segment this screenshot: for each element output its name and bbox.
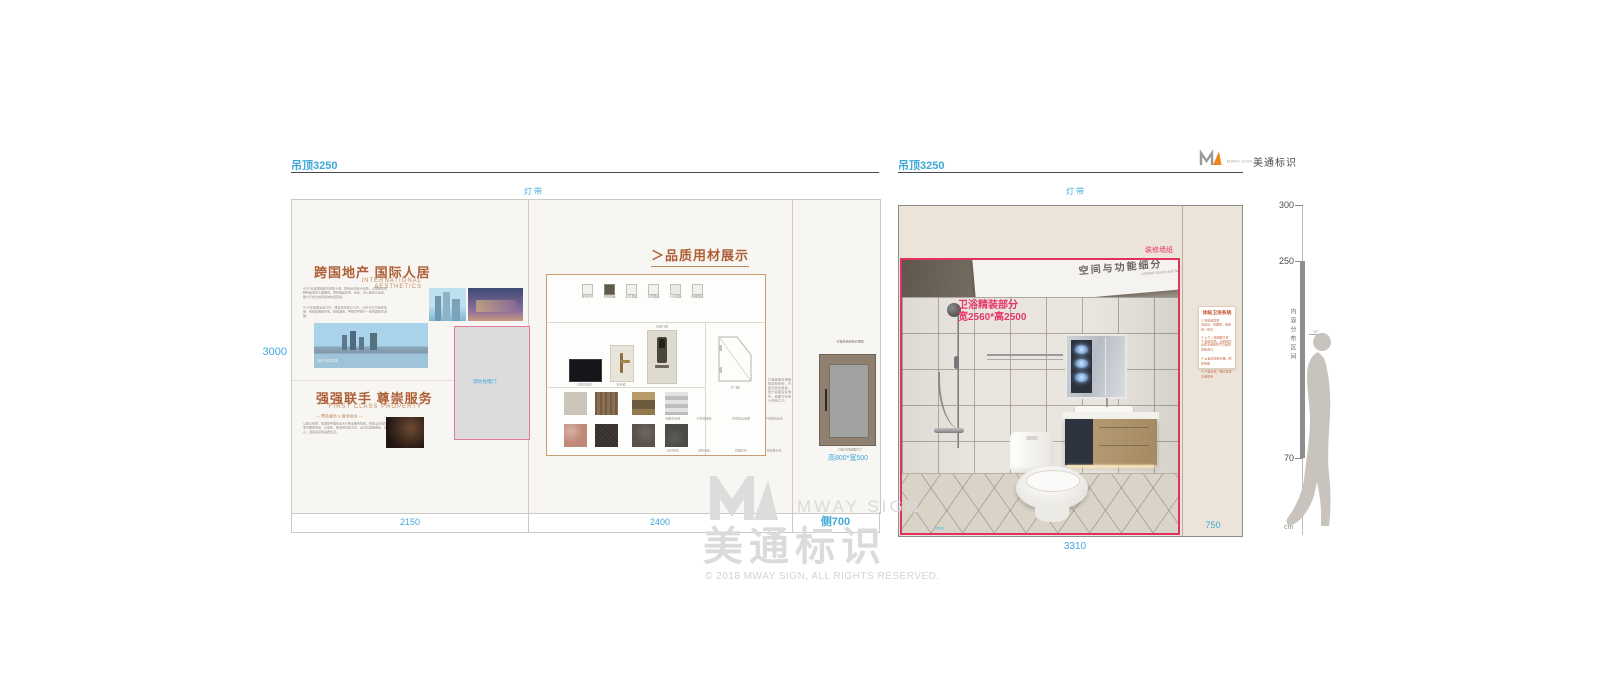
flush-button: [1026, 436, 1038, 440]
mirror-led-column: [1071, 340, 1092, 393]
human-silhouette: [1280, 330, 1342, 530]
brandwall-body-1: HG产业集团深耕湾区数十载，联袂全球设计资源，以国际化视野缔造城市人居典范，项目…: [303, 287, 387, 323]
fire-hydrant-hidden-door: 消防栓暗门: [454, 326, 530, 440]
cabinet-door: [829, 364, 869, 438]
switch-icon: [648, 284, 659, 295]
ruler-tick-mark: [1295, 205, 1303, 206]
city-lights: [476, 300, 516, 312]
dim-2400: 2400: [528, 512, 793, 532]
switch-sample: 五孔插座: [624, 284, 639, 303]
cabinet-top-note: 灯箱开启结构示意图: [819, 340, 881, 344]
switch-icon: [582, 284, 593, 295]
switch-icon: [626, 284, 637, 295]
handle-label: 执手锁: [610, 382, 632, 387]
tower-shape: [350, 331, 356, 350]
drawer-line: [1099, 427, 1149, 428]
lock-screen: [659, 339, 665, 348]
right-panel-elevation: 装修墙纸 空间与功能细分 Limited space and functiona…: [898, 205, 1243, 537]
building-shape: [452, 299, 460, 321]
door-diagram-label: 户门图: [727, 385, 743, 390]
led-glow: [1075, 345, 1088, 354]
left-height-dim: 3000: [253, 346, 287, 358]
lifestyle-photo: [386, 417, 424, 448]
dim-2150: 2150: [292, 512, 529, 532]
shower-valve: [934, 428, 964, 433]
toilet-seat: [1026, 470, 1080, 492]
card-lines: ① 智能浴室柜 洗漱台、镜面柜、收纳格一体化 ② 上下一体暗藏灯带 ③ 恒温花洒…: [1201, 319, 1233, 389]
cabinet-handle: [825, 389, 827, 411]
switch-sample: USB插座: [668, 284, 683, 303]
lightbox-cabinet: [819, 354, 876, 446]
switch-sample: 单控开关: [580, 284, 595, 303]
brandwall-subtitle-2: FIRST CLASS PROPERTY: [316, 404, 422, 410]
card-title: 体贴卫浴系统: [1201, 310, 1233, 317]
drawer-line: [1099, 445, 1149, 446]
building-photo-small-2: [468, 288, 523, 321]
toilet-base: [1035, 504, 1069, 522]
mirror-door-seam: [1105, 338, 1106, 395]
switch-icon: [692, 284, 703, 295]
right-ceiling-label: 吊顶3250: [898, 157, 944, 173]
bath-system-card: 体贴卫浴系统 ① 智能浴室柜 洗漱台、镜面柜、收纳格一体化 ② 上下一体暗藏灯带…: [1198, 306, 1236, 369]
door-handle-sample: [610, 345, 634, 382]
tower-shape: [342, 335, 347, 350]
brandwall-mid-divider: [292, 380, 454, 381]
cabinet-bottom-note: 灯箱可视画面尺寸: [819, 448, 881, 452]
board-divider-h1: [547, 322, 765, 323]
switch-sample: 空调插座: [646, 284, 661, 303]
towel-bar: [987, 354, 1063, 356]
right-ceiling-line: [898, 172, 1243, 173]
fire-hydrant-label: 消防栓暗门: [455, 379, 514, 386]
materials-board: 单控开关 调色面板 五孔插座 空调插座 USB插座: [546, 274, 766, 456]
switch-samples-row: 单控开关 调色面板 五孔插座 空调插座 USB插座: [580, 284, 705, 303]
vanity-faucet: [1106, 398, 1108, 407]
design-sheet: 吊顶3250 灯带 3000 跨国地产 国际人居 INTERNATIONAL A…: [0, 0, 1600, 678]
left-lightstrip-label: 灯带: [524, 186, 544, 197]
material-swatch: [595, 424, 618, 447]
vanity-underlight: [1067, 465, 1155, 468]
photo-ceiling: 空间与功能细分 Limited space and functional sub…: [902, 260, 1180, 297]
wallpaper-label: 装修墙纸: [1145, 245, 1173, 255]
logo-brand-cn: 美通标识: [1253, 154, 1297, 169]
lock-handle: [655, 365, 669, 368]
board-divider-h2: [547, 387, 705, 388]
dim-3310: 3310: [1030, 541, 1120, 552]
shower-handheld: [954, 356, 959, 369]
left-ceiling-label: 吊顶3250: [291, 157, 337, 173]
handle-plate: [620, 353, 623, 373]
building-photo-small-1: [429, 288, 466, 321]
mway-logo-icon: [1198, 150, 1224, 167]
building-shape: [435, 296, 441, 321]
ruler-unit-label: cm: [1284, 524, 1293, 531]
lock-body: [657, 337, 667, 363]
towel-bar-2: [987, 359, 1063, 360]
material-swatch: [632, 424, 655, 447]
led-glow: [1075, 359, 1088, 368]
photo-caption-line1: 卫浴精装部分: [958, 300, 1026, 312]
left-panel-divider-2: [792, 200, 793, 513]
smart-lock-sample: 智能门锁: [647, 330, 677, 384]
left-panel-elevation: 跨国地产 国际人居 INTERNATIONAL AESTHETICS HG产业集…: [291, 199, 881, 514]
intercom-label: 可视对讲机: [569, 382, 600, 387]
copyright-text: © 2018 MWAY SIGN, ALL RIGHTS RESERVED.: [705, 571, 940, 582]
building-shape: [443, 292, 450, 321]
dim-750: 750: [1182, 520, 1244, 530]
right-lightstrip-label: 灯带: [1066, 186, 1086, 197]
left-dim-strip: 2150 2400 侧700: [291, 512, 880, 533]
video-intercom-screen: [569, 359, 602, 382]
switch-icon: [604, 284, 615, 295]
ruler-tick-250: 250: [1272, 256, 1294, 266]
lock-label: 智能门锁: [648, 324, 676, 329]
material-swatch: [564, 424, 587, 447]
cityscape-caption: 城市湾区实景图: [317, 359, 431, 363]
photo-caption: 卫浴精装部分 宽2560*高2500: [958, 300, 1026, 324]
materials-side-note: 灯箱画面采用磁吸软膜结构，内容可随时更换，便于后期运营维护，画面均采用UV喷绘工…: [768, 378, 791, 412]
handle-lever: [620, 360, 630, 363]
materials-heading: 品质用材展示: [665, 248, 749, 263]
ruler-tick-300: 300: [1272, 200, 1294, 210]
switch-icon: [670, 284, 681, 295]
figure-height-label: 180: [1313, 330, 1600, 334]
switch-sample: 调色面板: [602, 284, 617, 303]
dim-side700: 侧700: [792, 512, 880, 532]
board-divider-v: [705, 322, 706, 455]
photo-bottom-dim: 2560: [935, 526, 1180, 532]
tower-shape: [359, 337, 364, 350]
right-panel-divider: [1182, 206, 1183, 536]
vanity-counter: [1062, 412, 1159, 419]
tower-shape: [370, 333, 377, 350]
mirror-cabinet: [1065, 334, 1127, 399]
cityscape-photo: 城市湾区实景图: [314, 323, 428, 368]
led-glow: [1075, 373, 1088, 382]
cabinet-size: 高800*宽500: [804, 453, 892, 463]
materials-heading-arrow: ＞: [651, 248, 665, 263]
material-swatch: [632, 392, 655, 415]
vanity-cabinet: [1065, 419, 1157, 465]
materials-heading-wrap: ＞品质用材展示: [609, 245, 749, 267]
left-ceiling-line: [291, 172, 879, 173]
material-swatch: [665, 392, 688, 415]
switch-sample: 网络插座: [690, 284, 705, 303]
material-swatch: [595, 392, 618, 415]
brandwall-body-2: 以匠心筑家，集团联手国际五大行物业服务机构，构建全天候管家式服务体系，从安防、保…: [303, 422, 387, 450]
bathroom-photo: 空间与功能细分 Limited space and functional sub…: [900, 258, 1180, 535]
material-swatch: [665, 424, 688, 447]
door-diagram: [717, 335, 753, 383]
material-swatch: [564, 392, 587, 415]
photo-caption-line2: 宽2560*高2500: [958, 312, 1026, 324]
